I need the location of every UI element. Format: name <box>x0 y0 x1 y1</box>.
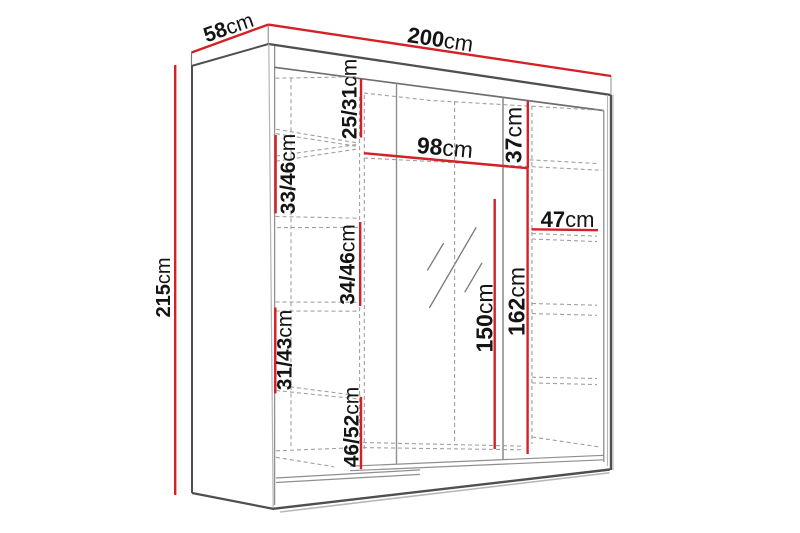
svg-text:37cm: 37cm <box>501 107 527 163</box>
svg-text:25/31cm: 25/31cm <box>338 59 361 140</box>
svg-text:47cm: 47cm <box>541 207 595 232</box>
svg-text:98cm: 98cm <box>416 132 474 163</box>
svg-text:33/46cm: 33/46cm <box>277 134 300 215</box>
svg-text:31/43cm: 31/43cm <box>273 310 296 391</box>
svg-text:215cm: 215cm <box>153 257 175 317</box>
svg-text:34/46cm: 34/46cm <box>336 224 359 305</box>
svg-text:162cm: 162cm <box>504 267 530 336</box>
svg-text:46/52cm: 46/52cm <box>340 387 363 468</box>
svg-text:150cm: 150cm <box>472 283 498 352</box>
